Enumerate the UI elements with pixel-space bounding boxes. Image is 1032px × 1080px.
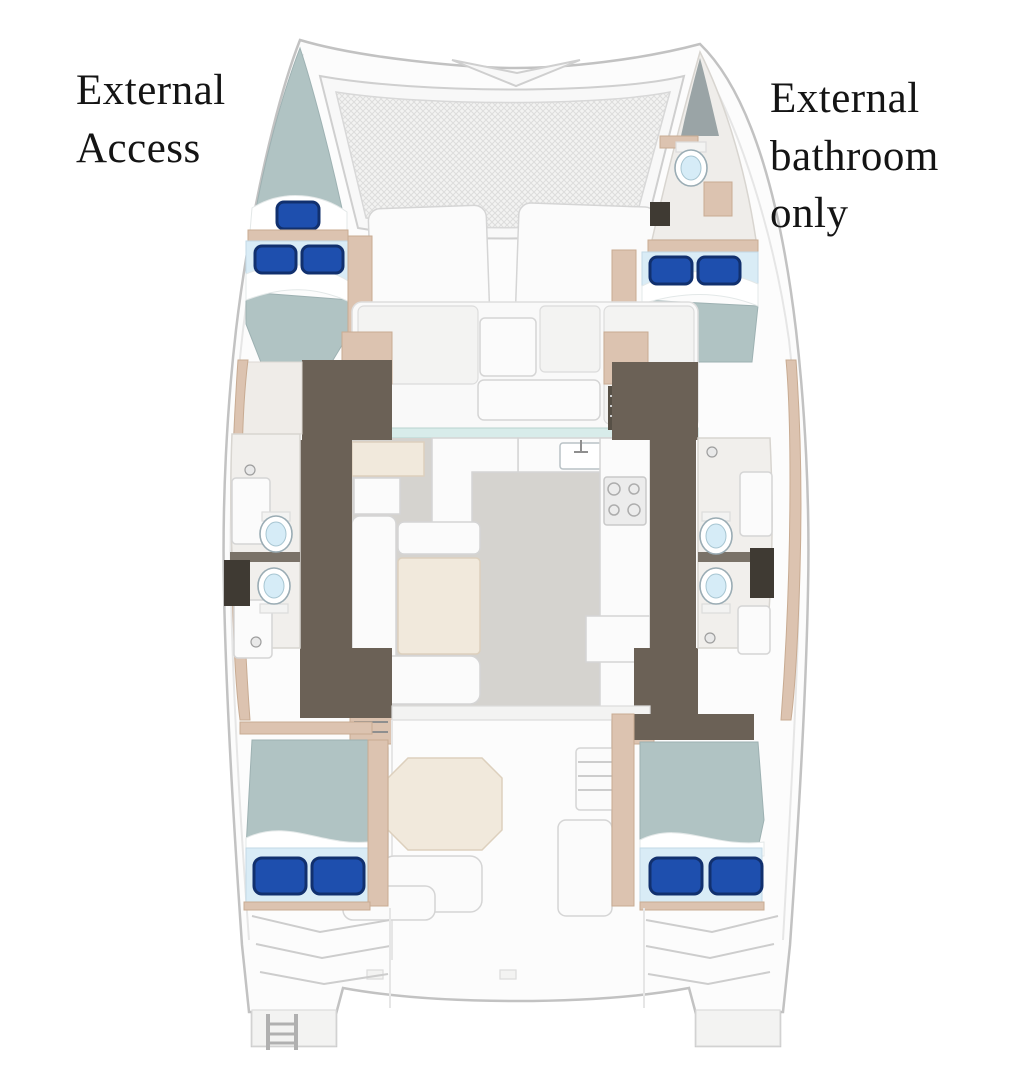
cabin-trim [612, 714, 634, 906]
cabin-trim [368, 740, 388, 906]
side-counter [352, 442, 424, 476]
pillow [312, 858, 364, 894]
forepeak-bulkhead [248, 230, 348, 241]
toilet-icon [700, 568, 732, 613]
bathroom-cabinet [650, 202, 670, 226]
pillow [277, 202, 319, 229]
catamaran-floorplan: External Access External bathroom only [0, 0, 1032, 1080]
starboard-bathroom [698, 438, 774, 654]
toilet-icon [260, 512, 292, 552]
cockpit-table [388, 758, 502, 850]
sliding-door [392, 706, 650, 720]
pillow [302, 246, 343, 273]
deck-hatch [500, 970, 516, 979]
pillow [710, 858, 762, 894]
pillow [255, 246, 296, 273]
shower-stall [738, 606, 770, 654]
annotation-external-bathroom: External bathroom only [770, 70, 990, 243]
cabin-trim [244, 902, 370, 910]
toilet-icon [258, 568, 290, 613]
bathroom-cabinet [750, 548, 774, 598]
cabin-bulkhead [634, 714, 754, 740]
cockpit-module [558, 820, 612, 916]
toilet-icon [700, 512, 732, 554]
toilet-icon [675, 142, 707, 186]
galley-stove [604, 477, 646, 525]
annotation-external-access: External Access [76, 62, 281, 177]
cabin-bulkhead [240, 722, 372, 734]
pillow [650, 858, 702, 894]
port-aft-cabin-bed [240, 722, 388, 910]
pillow [698, 257, 740, 284]
forepeak-bulkhead [648, 240, 758, 252]
shower-stall [740, 472, 772, 536]
swim-platform-starboard [696, 1010, 780, 1046]
saloon-table [398, 558, 480, 654]
galley-sink [560, 440, 602, 469]
cabin-trim [640, 902, 764, 910]
cockpit-steps [576, 748, 616, 810]
pillow [254, 858, 306, 894]
vanity-cabinet [704, 182, 732, 216]
pillow [650, 257, 692, 284]
saloon-bench [398, 522, 480, 554]
bathroom-cabinet [224, 560, 250, 606]
port-bathroom [224, 434, 300, 658]
